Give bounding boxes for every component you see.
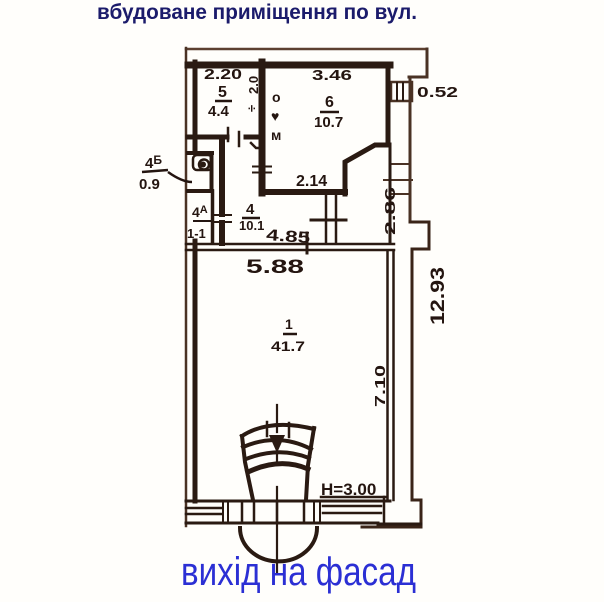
svg-text:2.20: 2.20 <box>204 66 242 83</box>
svg-text:0.52: 0.52 <box>417 84 458 101</box>
svg-text:12.93: 12.93 <box>428 267 449 325</box>
svg-text:6: 6 <box>325 94 334 111</box>
svg-text:7.10: 7.10 <box>372 365 389 407</box>
svg-text:5: 5 <box>218 84 227 101</box>
svg-text:4: 4 <box>246 201 255 218</box>
svg-text:2.0: 2.0 <box>246 76 261 94</box>
svg-text:вихід на фасад: вихід на фасад <box>181 550 416 594</box>
svg-text:вбудоване приміщення по вул.: вбудоване приміщення по вул. <box>97 1 417 24</box>
svg-text:3.46: 3.46 <box>312 67 352 84</box>
svg-text:41.7: 41.7 <box>271 338 305 354</box>
svg-text:2.86: 2.86 <box>382 187 399 235</box>
svg-text:4.4: 4.4 <box>208 103 230 120</box>
svg-text:5.88: 5.88 <box>246 257 304 278</box>
svg-text:1: 1 <box>285 316 293 332</box>
svg-text:♥: ♥ <box>271 108 279 124</box>
svg-text:2.14: 2.14 <box>296 173 327 190</box>
svg-text:10.1: 10.1 <box>239 218 264 233</box>
svg-text:1-1: 1-1 <box>187 226 206 241</box>
svg-text:о: о <box>272 89 281 105</box>
svg-text:0.9: 0.9 <box>139 176 160 193</box>
svg-text:м: м <box>271 127 281 143</box>
svg-text:4.85: 4.85 <box>266 227 311 247</box>
svg-text:10.7: 10.7 <box>314 114 343 131</box>
svg-text:Н=3.00: Н=3.00 <box>321 480 376 499</box>
svg-text:÷: ÷ <box>244 105 259 112</box>
